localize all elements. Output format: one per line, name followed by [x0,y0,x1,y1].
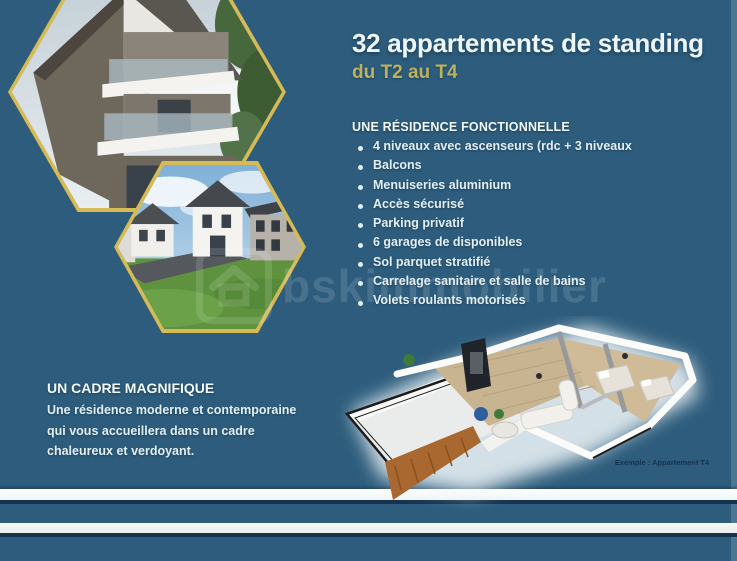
feature-item: Menuiseries aluminium [358,178,632,197]
bullet-dot-icon [358,223,363,228]
feature-item-label: Sol parquet stratifié [373,255,490,269]
features-list: 4 niveaux avec ascenseurs (rdc + 3 nivea… [358,139,632,313]
feature-item-label: Balcons [373,158,422,172]
page-subtitle: du T2 au T4 [352,62,458,84]
feature-item-label: Parking privatif [373,216,464,230]
floorplan-caption: Exemple : Appartement T4 [596,458,728,467]
bullet-dot-icon [358,146,363,151]
feature-item-label: Menuiseries aluminium [373,178,511,192]
feature-item-label: Accès sécurisé [373,197,464,211]
bullet-dot-icon [358,262,363,267]
bullet-dot-icon [358,204,363,209]
feature-item: Parking privatif [358,216,632,235]
right-edge-highlight [731,0,737,561]
bullet-dot-icon [358,281,363,286]
feature-item-label: Carrelage sanitaire et salle de bains [373,274,586,288]
bullet-dot-icon [358,301,363,306]
feature-item-label: 4 niveaux avec ascenseurs (rdc + 3 nivea… [373,139,632,153]
feature-item: 4 niveaux avec ascenseurs (rdc + 3 nivea… [358,139,632,158]
feature-item-label: 6 garages de disponibles [373,235,522,249]
bullet-dot-icon [358,185,363,190]
bullet-dot-icon [358,243,363,248]
feature-item: Volets roulants motorisés [358,293,632,312]
feature-item: 6 garages de disponibles [358,235,632,254]
bottom-stripe-2-shadow [0,533,737,537]
bottom-stripe-2 [0,523,737,533]
features-heading: UNE RÉSIDENCE FONCTIONNELLE [352,120,570,134]
page-title: 32 appartements de standing [352,28,704,59]
floorplan-render [333,316,723,516]
flyer-page: bskimmobilier [0,0,737,561]
feature-item-label: Volets roulants motorisés [373,293,526,307]
feature-item: Sol parquet stratifié [358,255,632,274]
bullet-dot-icon [358,165,363,170]
feature-item: Accès sécurisé [358,197,632,216]
feature-item: Carrelage sanitaire et salle de bains [358,274,632,293]
cadre-heading: UN CADRE MAGNIFIQUE [47,380,214,396]
cadre-body: Une résidence moderne et contemporaine q… [47,400,315,462]
feature-item: Balcons [358,158,632,177]
